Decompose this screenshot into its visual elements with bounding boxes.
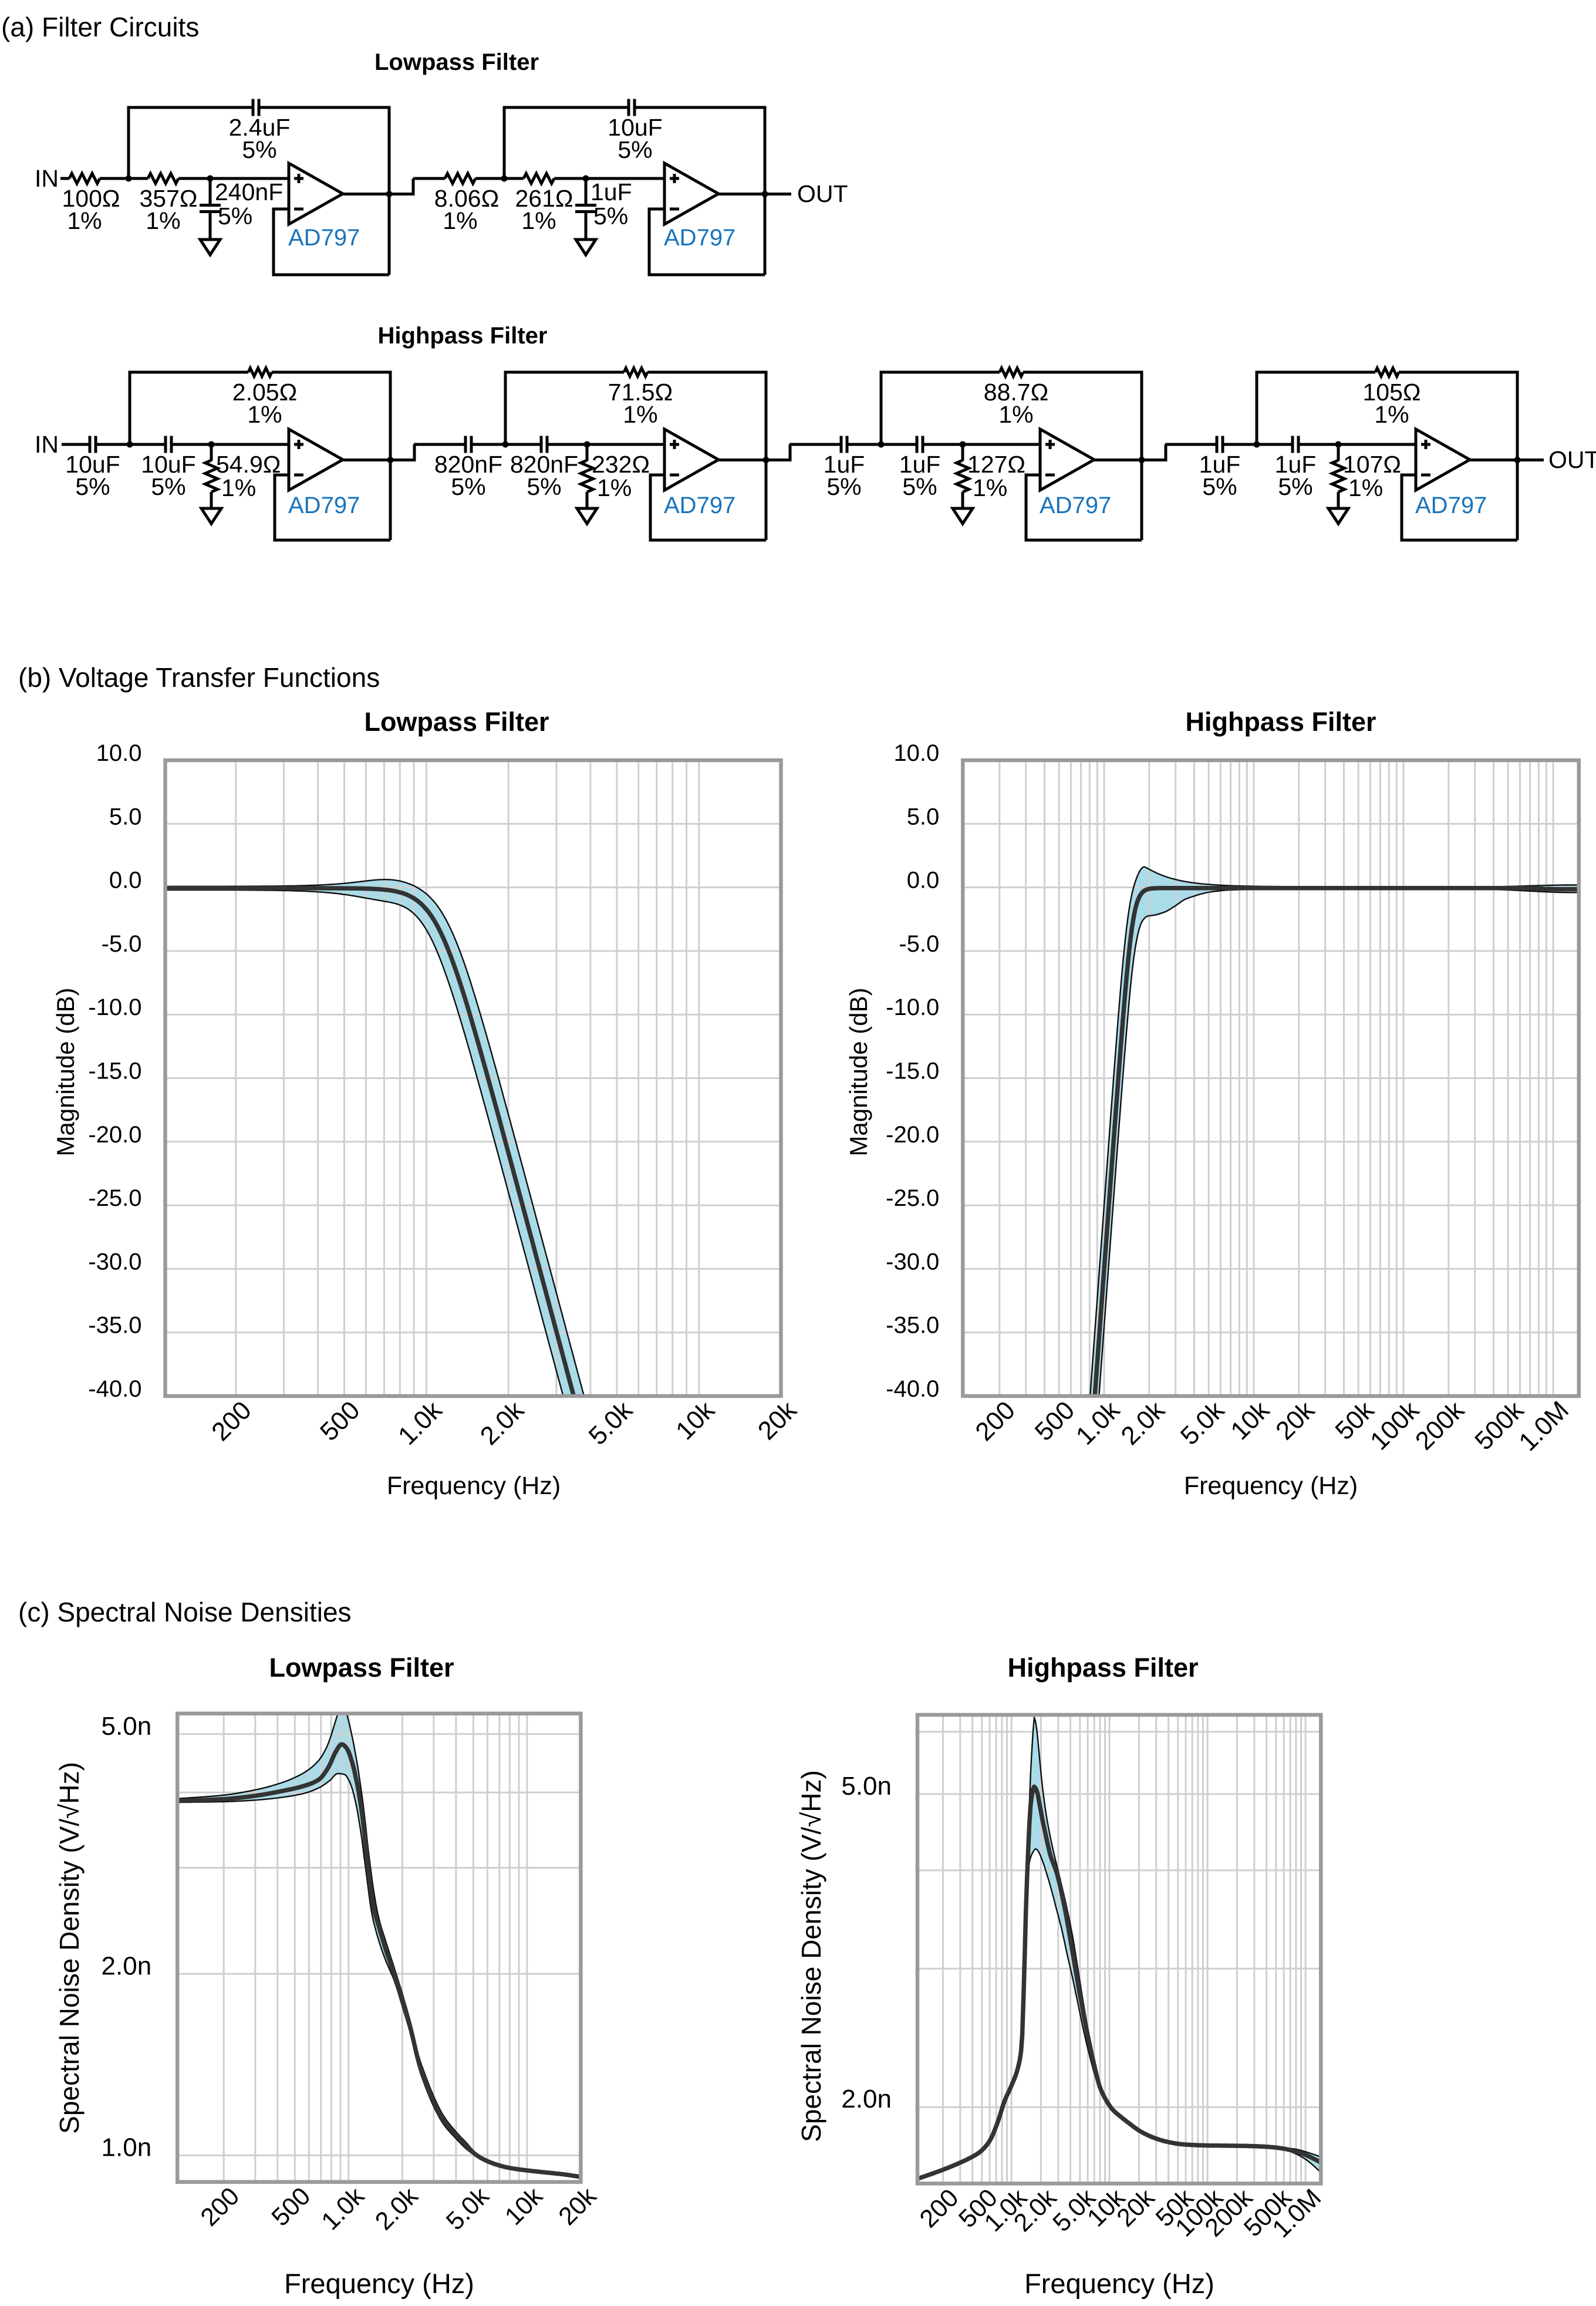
svg-text:1.0k: 1.0k <box>1071 1395 1126 1451</box>
svg-text:20k: 20k <box>753 1395 803 1446</box>
svg-text:Frequency (Hz): Frequency (Hz) <box>1184 1472 1358 1500</box>
svg-text:1.0k: 1.0k <box>393 1395 448 1451</box>
svg-text:Magnitude (dB): Magnitude (dB) <box>52 987 79 1156</box>
svg-text:200: 200 <box>206 1395 257 1447</box>
svg-text:2.0k: 2.0k <box>475 1395 530 1451</box>
svg-text:Spectral Noise Density (V/√Hz): Spectral Noise Density (V/√Hz) <box>796 1770 826 2142</box>
svg-text:10.0: 10.0 <box>96 740 142 766</box>
svg-text:(a) Filter Circuits: (a) Filter Circuits <box>1 12 199 42</box>
svg-text:OUT: OUT <box>797 180 848 207</box>
svg-text:AD797: AD797 <box>1415 493 1487 518</box>
svg-text:5%: 5% <box>1278 473 1312 500</box>
svg-text:2.0n: 2.0n <box>841 2085 892 2113</box>
svg-text:240nF: 240nF <box>215 178 283 205</box>
svg-text:1%: 1% <box>597 474 632 501</box>
svg-text:1%: 1% <box>521 207 556 234</box>
svg-text:OUT: OUT <box>1548 446 1596 473</box>
svg-text:5.0: 5.0 <box>907 804 940 830</box>
svg-text:5.0k: 5.0k <box>441 2182 495 2236</box>
svg-text:200: 200 <box>195 2182 245 2232</box>
svg-text:-35.0: -35.0 <box>88 1313 141 1339</box>
svg-text:-40.0: -40.0 <box>88 1376 141 1402</box>
svg-text:1.0n: 1.0n <box>102 2133 152 2162</box>
svg-text:5%: 5% <box>618 136 652 163</box>
svg-text:200: 200 <box>970 1395 1021 1447</box>
svg-text:(b) Voltage Transfer Functions: (b) Voltage Transfer Functions <box>18 662 380 693</box>
svg-text:-10.0: -10.0 <box>886 994 939 1020</box>
svg-text:1%: 1% <box>221 474 256 501</box>
svg-text:-5.0: -5.0 <box>899 931 939 957</box>
svg-text:Spectral Noise Density (V/√Hz): Spectral Noise Density (V/√Hz) <box>54 1762 85 2134</box>
svg-text:2.0k: 2.0k <box>1115 1395 1170 1451</box>
svg-text:Frequency (Hz): Frequency (Hz) <box>387 1472 561 1500</box>
svg-text:AD797: AD797 <box>1040 493 1111 518</box>
svg-text:500: 500 <box>266 2182 316 2232</box>
svg-text:1%: 1% <box>247 401 282 428</box>
svg-text:Lowpass Filter: Lowpass Filter <box>269 1653 454 1683</box>
svg-text:10k: 10k <box>1225 1395 1276 1446</box>
svg-text:1%: 1% <box>1348 474 1383 501</box>
svg-text:-5.0: -5.0 <box>102 931 142 957</box>
svg-text:2.0n: 2.0n <box>102 1951 152 1980</box>
svg-text:500: 500 <box>1030 1395 1081 1447</box>
svg-text:AD797: AD797 <box>288 225 360 251</box>
svg-text:5%: 5% <box>1202 473 1237 500</box>
svg-text:200k: 200k <box>1410 1395 1470 1456</box>
svg-text:Frequency (Hz): Frequency (Hz) <box>1024 2268 1214 2299</box>
svg-text:5.0n: 5.0n <box>102 1712 152 1741</box>
svg-text:Magnitude (dB): Magnitude (dB) <box>845 987 872 1156</box>
svg-text:10.0: 10.0 <box>893 740 939 766</box>
svg-text:AD797: AD797 <box>664 225 735 251</box>
svg-text:Lowpass Filter: Lowpass Filter <box>374 49 539 75</box>
svg-text:5%: 5% <box>75 473 110 500</box>
svg-text:200: 200 <box>915 2184 964 2234</box>
svg-text:2.0k: 2.0k <box>370 2182 424 2236</box>
svg-text:Highpass Filter: Highpass Filter <box>1185 707 1376 737</box>
svg-text:5%: 5% <box>902 473 937 500</box>
svg-text:0.0: 0.0 <box>907 868 940 894</box>
svg-text:Highpass Filter: Highpass Filter <box>378 323 548 349</box>
svg-text:-15.0: -15.0 <box>88 1058 141 1084</box>
svg-text:10k: 10k <box>670 1395 721 1446</box>
svg-text:500: 500 <box>315 1395 366 1447</box>
svg-text:5.0n: 5.0n <box>841 1772 892 1801</box>
svg-text:20k: 20k <box>553 2182 602 2230</box>
svg-text:1%: 1% <box>67 207 102 234</box>
svg-text:1%: 1% <box>146 207 180 234</box>
svg-text:IN: IN <box>35 431 59 458</box>
svg-text:5.0: 5.0 <box>109 804 142 830</box>
svg-text:100k: 100k <box>1365 1395 1425 1456</box>
svg-text:0.0: 0.0 <box>109 868 142 894</box>
svg-text:1%: 1% <box>1374 401 1409 428</box>
svg-text:1%: 1% <box>623 401 657 428</box>
svg-text:1%: 1% <box>973 474 1007 501</box>
svg-text:5.0k: 5.0k <box>583 1395 639 1451</box>
svg-text:5%: 5% <box>151 473 185 500</box>
svg-text:5%: 5% <box>527 473 561 500</box>
svg-text:AD797: AD797 <box>288 493 360 518</box>
svg-text:5%: 5% <box>218 203 252 230</box>
svg-text:Highpass Filter: Highpass Filter <box>1007 1653 1198 1683</box>
svg-text:500k: 500k <box>1469 1395 1530 1456</box>
svg-text:-15.0: -15.0 <box>886 1058 939 1084</box>
svg-text:1.0k: 1.0k <box>316 2182 370 2236</box>
svg-text:5%: 5% <box>451 473 485 500</box>
svg-text:10k: 10k <box>500 2182 548 2230</box>
svg-text:-10.0: -10.0 <box>88 994 141 1020</box>
svg-text:(c) Spectral Noise Densities: (c) Spectral Noise Densities <box>18 1597 352 1627</box>
svg-text:-20.0: -20.0 <box>886 1122 939 1148</box>
svg-text:5%: 5% <box>593 203 628 230</box>
svg-text:5%: 5% <box>242 136 276 163</box>
svg-text:-35.0: -35.0 <box>886 1313 939 1339</box>
svg-text:AD797: AD797 <box>664 493 735 518</box>
svg-text:-40.0: -40.0 <box>886 1376 939 1402</box>
svg-text:-25.0: -25.0 <box>88 1185 141 1211</box>
svg-text:-20.0: -20.0 <box>88 1122 141 1148</box>
svg-text:5%: 5% <box>826 473 861 500</box>
svg-text:Frequency (Hz): Frequency (Hz) <box>284 2268 474 2299</box>
svg-text:-30.0: -30.0 <box>88 1249 141 1275</box>
svg-text:20k: 20k <box>1270 1395 1321 1446</box>
svg-text:1.0M: 1.0M <box>1513 1395 1574 1457</box>
svg-text:-25.0: -25.0 <box>886 1185 939 1211</box>
svg-text:Lowpass Filter: Lowpass Filter <box>364 707 549 737</box>
svg-text:-30.0: -30.0 <box>886 1249 939 1275</box>
svg-text:IN: IN <box>35 165 59 192</box>
svg-text:1%: 1% <box>998 401 1033 428</box>
svg-text:1%: 1% <box>443 207 477 234</box>
svg-text:1uF: 1uF <box>591 178 632 205</box>
svg-text:5.0k: 5.0k <box>1175 1395 1230 1451</box>
svg-text:20k: 20k <box>1111 2183 1160 2232</box>
